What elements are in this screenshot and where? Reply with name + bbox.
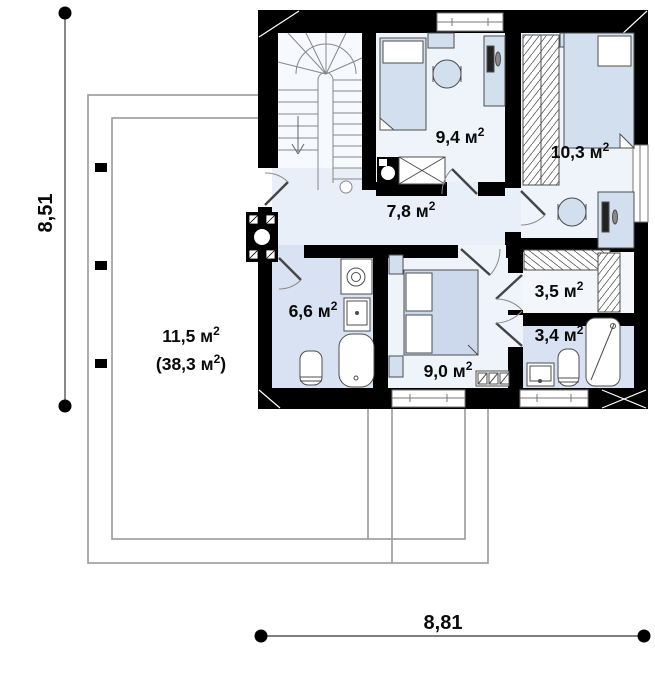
dimension-marker bbox=[255, 630, 268, 643]
room-label-bedroom2: 10,3 м2 bbox=[551, 140, 610, 162]
wardrobe-icon bbox=[523, 35, 559, 185]
mouse-icon bbox=[613, 210, 618, 224]
building: 7,8 м2 9,4 м2 10,3 м2 6,6 м2 9,0 м2 3,5 … bbox=[246, 10, 648, 409]
washing-machine-icon bbox=[341, 259, 372, 294]
toilet-icon bbox=[300, 351, 322, 385]
radiator-icon bbox=[476, 371, 509, 386]
door-opening bbox=[278, 245, 304, 258]
terrace-label: 11,5 м2 (38,3 м2) bbox=[156, 324, 226, 374]
toilet-icon bbox=[558, 349, 579, 386]
closet-icon bbox=[399, 157, 445, 184]
sink-icon bbox=[527, 363, 554, 386]
dimension-marker bbox=[59, 400, 72, 413]
stair-newel bbox=[340, 181, 352, 193]
dimension-bottom: 8,81 bbox=[255, 612, 651, 643]
window-icon bbox=[633, 145, 648, 222]
room-label-bedroom1: 9,4 м2 bbox=[436, 125, 485, 147]
chair-icon bbox=[558, 198, 586, 226]
dimension-left: 8,51 bbox=[35, 7, 72, 413]
nightstand-icon bbox=[389, 255, 403, 274]
room-staircase-floor bbox=[278, 33, 362, 190]
vent-shaft-icon bbox=[377, 157, 399, 184]
pillow-icon bbox=[598, 36, 631, 66]
pillow-icon bbox=[406, 315, 432, 353]
room-label-hall: 7,8 м2 bbox=[387, 199, 436, 221]
floor-plan-canvas: 8,51 8,81 bbox=[0, 0, 655, 678]
terrace-total-area-label: (38,3 м2) bbox=[156, 352, 226, 374]
terrace-area-label: 11,5 м2 bbox=[162, 324, 220, 346]
dimension-marker bbox=[59, 7, 72, 20]
dimension-marker bbox=[638, 630, 651, 643]
pillow-icon bbox=[383, 41, 423, 63]
shower-icon bbox=[586, 318, 620, 386]
floor-plan-page: 8,51 8,81 bbox=[0, 0, 655, 678]
post-icon bbox=[95, 359, 107, 368]
chimney-icon bbox=[246, 212, 278, 262]
dimension-left-label: 8,51 bbox=[35, 194, 57, 233]
shelf-hatch-icon bbox=[598, 253, 620, 312]
dimension-bottom-label: 8,81 bbox=[424, 612, 463, 634]
window-icon bbox=[392, 390, 465, 407]
chair-icon bbox=[433, 60, 461, 88]
terrace-posts bbox=[95, 163, 107, 368]
room-label-bedroom3: 9,0 м2 bbox=[424, 359, 473, 381]
bathtub-icon bbox=[339, 334, 374, 387]
room-label-bathroom1: 6,6 м2 bbox=[289, 299, 338, 321]
sink-icon bbox=[344, 298, 370, 331]
shelf-hatch-icon bbox=[524, 250, 610, 270]
window-icon bbox=[437, 13, 503, 31]
computer-icon bbox=[487, 46, 494, 72]
window-icon bbox=[520, 390, 588, 407]
mouse-icon bbox=[496, 52, 501, 66]
pillow-icon bbox=[406, 273, 432, 311]
door-opening bbox=[505, 188, 521, 232]
post-icon bbox=[95, 261, 107, 270]
room-label-wardrobe: 3,5 м2 bbox=[535, 279, 584, 301]
computer-icon bbox=[602, 202, 609, 232]
post-icon bbox=[95, 163, 107, 172]
nightstand-icon bbox=[389, 356, 403, 377]
room-label-bathroom2: 3,4 м2 bbox=[535, 323, 584, 345]
shelf-icon bbox=[428, 33, 454, 48]
